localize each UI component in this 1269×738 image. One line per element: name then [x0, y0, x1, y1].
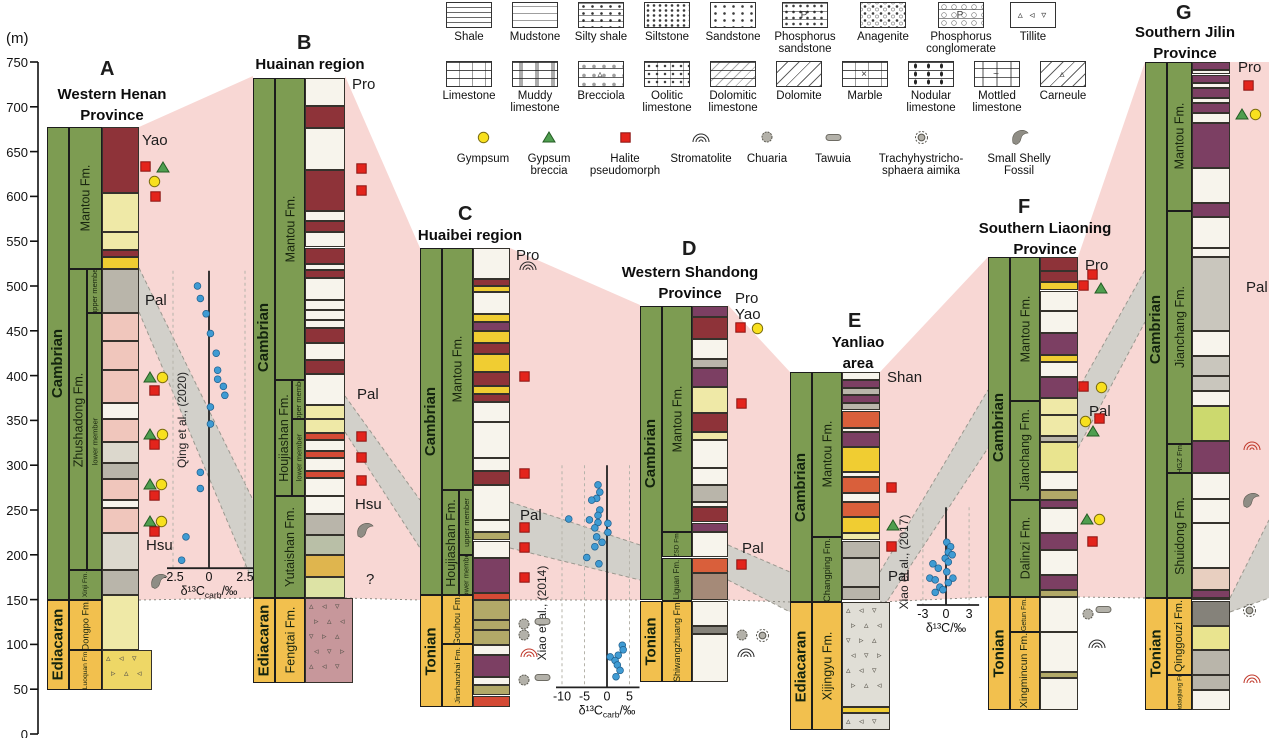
lith-segment: [692, 440, 728, 468]
rotated-label: Mantou Fm.: [1173, 103, 1187, 170]
era-ediacaran: Ediacaran: [47, 600, 69, 691]
rotated-label: Shiwangzhuang Fm.: [672, 601, 682, 683]
column-letter-C: C: [458, 203, 472, 226]
symbol-gyp-icon: [1095, 381, 1108, 394]
lith-segment: [305, 211, 345, 221]
lith-segment: [473, 292, 510, 314]
era-cambrian: Cambrian: [1145, 62, 1167, 598]
lith-segment: [692, 601, 728, 626]
lith-segment: [842, 447, 880, 472]
legend-swatch-dolomite: [776, 61, 822, 87]
column-letter-A: A: [100, 58, 114, 81]
lith-segment: [305, 170, 345, 210]
symbol-halite-icon: [356, 431, 367, 442]
lith-segment: [842, 395, 880, 403]
formation-houjiashan-fm-: Houjiashan Fm.: [275, 380, 292, 496]
tillite-clast-icon: ▿: [846, 636, 851, 645]
formation-xingmincun-fm-: Xingmincun Fm.: [1010, 632, 1040, 710]
lith-segment: [1192, 499, 1230, 523]
lith-segment: [1192, 473, 1230, 499]
symbol-halite-icon: [886, 482, 897, 493]
lith-segment: [692, 523, 728, 533]
tillite-clast-icon: ◃: [119, 654, 124, 663]
legend-label: Silty shale: [569, 31, 633, 43]
tillite-clast-icon: ▿: [132, 654, 137, 663]
column-title-E: Yanliaoarea: [832, 332, 885, 374]
lith-segment: [692, 306, 728, 318]
symbol-halite-icon: [886, 541, 897, 552]
symbol-halite-icon: [356, 185, 367, 196]
rotated-label: Xingmincun Fm.: [1020, 633, 1031, 708]
lith-segment: [305, 270, 345, 278]
tillite-clast-icon: ▹: [340, 647, 345, 656]
rotated-label: Cambrian: [793, 453, 810, 522]
lith-segment: [305, 248, 345, 264]
lith-segment: [692, 634, 728, 682]
lith-segment: [1192, 568, 1230, 590]
symbol-gtri-icon: [886, 519, 900, 531]
gyp-icon: [451, 124, 515, 150]
tillite-clast-icon: ▵: [872, 636, 877, 645]
lith-segment: [473, 354, 510, 372]
era-tonian: Tonian: [988, 597, 1010, 710]
tillite-clast-icon: ▵: [309, 662, 314, 671]
lith-segment: [692, 339, 728, 359]
zone-label-yao: Yao: [142, 132, 168, 149]
column-title-A: Western HenanProvince: [58, 84, 167, 126]
era-ediacaran: Ediacaran: [253, 598, 275, 683]
legend-label: Dolomite: [767, 90, 831, 102]
rotated-label: HGZ Fm.: [1175, 444, 1184, 474]
tillite-clast-icon: ▵: [106, 654, 111, 663]
legend-label: Tillite: [1001, 31, 1065, 43]
lith-segment: [1040, 415, 1078, 436]
marble-glyph-icon: ×: [843, 62, 887, 86]
symbol-halite-icon: [1243, 80, 1254, 91]
legend-label: Tawuia: [801, 153, 865, 165]
symbol-halite-icon: [519, 371, 530, 382]
symbol-halite-icon: [1087, 536, 1098, 547]
lith-segment: [1040, 500, 1078, 508]
legend-item: PPhosphorus sandstone: [766, 2, 844, 55]
lith-segment: [473, 394, 510, 402]
column-title-G: Southern JilinProvince: [1135, 22, 1235, 64]
rotated-label: Getun Fm.: [1022, 598, 1029, 631]
legend-item: Halite pseudomorph: [582, 124, 668, 177]
symbol-chuaria-icon: [517, 673, 531, 687]
lith-segment: [102, 257, 139, 269]
symbol-strom-icon: [1087, 638, 1107, 649]
lith-segment: ▵◃▿▹▵◃▿▹▵◃▿▹▵◃▿▹▵◃: [842, 602, 890, 707]
lith-segment: [1192, 356, 1230, 376]
halite-icon: [583, 124, 667, 150]
lith-segment: [1192, 675, 1230, 690]
zone-label-pal: Pal: [1246, 279, 1268, 296]
lith-segment: [102, 232, 139, 250]
tillite-clast-icon: ◃: [314, 647, 319, 656]
symbol-halite-icon: [356, 452, 367, 463]
lith-segment: [102, 463, 139, 478]
lith-segment: [1040, 355, 1078, 362]
zone-label-pro: Pro: [352, 76, 375, 93]
legend-item: Shale: [436, 2, 502, 43]
legend-item: Muddy limestone: [502, 61, 568, 114]
lith-segment: [305, 514, 345, 536]
lith-segment: [1040, 533, 1078, 550]
gtri-icon: [517, 124, 581, 150]
mottled-limestone-glyph-icon: ~: [975, 62, 1019, 86]
phosphorus-conglomerate-glyph-icon: P: [939, 3, 983, 27]
lith-segment: [473, 677, 510, 685]
legend-swatch-tillite: ▵ ◃ ▿: [1010, 2, 1056, 28]
lith-segment: [102, 127, 139, 192]
symbol-halite-icon: [736, 559, 747, 570]
lith-segment: [842, 403, 880, 410]
legend-item: Oolitic limestone: [634, 61, 700, 114]
carneule-glyph-icon: ▵: [1041, 62, 1085, 86]
lith-segment: [1040, 632, 1078, 672]
lith-segment: [692, 387, 728, 413]
tillite-clast-icon: ▹: [877, 651, 882, 660]
era-tonian: Tonian: [1145, 598, 1167, 710]
tillite-clast-icon: ▹: [859, 636, 864, 645]
legend-label: Stromatolite: [669, 153, 733, 165]
lith-segment: [102, 500, 139, 508]
rotated-label: Tonian: [991, 629, 1008, 677]
lith-segment: [842, 388, 880, 395]
rotated-label: Cambrian: [50, 329, 67, 398]
member-lower-member: lower member: [87, 313, 102, 570]
axis-tick-label: 100: [0, 637, 28, 652]
legend-swatch-anagenite: [860, 2, 906, 28]
lith-segment: [473, 696, 510, 708]
zone-label-hsu: Hsu: [355, 496, 382, 513]
tillite-clast-icon: ▿: [872, 717, 877, 726]
lith-segment: [1192, 168, 1230, 203]
lith-segment: [692, 532, 728, 557]
legend-swatch-brecciola: ▵: [578, 61, 624, 87]
legend-label: Oolitic limestone: [635, 90, 699, 114]
column-letter-D: D: [682, 238, 696, 261]
tillite-clast-icon: ▿: [309, 632, 314, 641]
lith-segment: [1192, 523, 1230, 568]
symbol-halite-icon: [140, 161, 151, 172]
tillite-clast-icon: ◃: [137, 669, 142, 678]
lith-segment: [842, 558, 880, 588]
lith-segment: [473, 458, 510, 471]
legend-item: Chuaria: [734, 124, 800, 165]
lith-segment: [305, 405, 345, 418]
formation-mantou-fm-: Mantou Fm.: [1167, 62, 1192, 211]
formation-mantou-fm-: Mantou Fm.: [812, 372, 842, 537]
legend-label: Limestone: [437, 90, 501, 102]
lith-segment: [305, 471, 345, 478]
lith-segment: ▵◃▿▹▵◃▿▹▵◃▿▹▵◃▿: [305, 598, 353, 683]
symbol-gtri-icon: [1235, 108, 1249, 120]
rotated-label: Luoquan Fm.: [82, 650, 89, 689]
rotated-label: lower member: [294, 433, 303, 481]
lith-segment: [1192, 391, 1230, 406]
lith-segment: [305, 300, 345, 310]
lith-segment: [305, 419, 345, 433]
legend-label: Mudstone: [503, 31, 567, 43]
rotated-label: upper member: [90, 269, 99, 313]
formation-shiwangzhuang-fm-: Shiwangzhuang Fm.: [662, 601, 692, 683]
formation-badaojiang-fm-: Badaojiang Fm.: [1167, 675, 1192, 710]
rotated-label: Jianchang Fm.: [1173, 286, 1187, 368]
era-cambrian: Cambrian: [988, 257, 1010, 597]
lith-segment: [102, 442, 139, 464]
lith-segment: [305, 496, 345, 514]
axis-tick-label: 550: [0, 234, 28, 249]
symbol-halite-icon: [149, 490, 160, 501]
lith-segment: [102, 533, 139, 570]
axis-tick-label: 650: [0, 145, 28, 160]
lith-segment: [305, 328, 345, 343]
era-cambrian: Cambrian: [47, 127, 69, 599]
legend-item: Gympsum: [450, 124, 516, 165]
lith-segment: [1040, 490, 1078, 500]
column-letter-B: B: [297, 32, 311, 55]
lith-segment: [1040, 442, 1078, 473]
zone-label-pal: Pal: [357, 386, 379, 403]
formation-mantou-fm-: Mantou Fm.: [662, 306, 692, 533]
tillite-clast-icon: ◃: [322, 662, 327, 671]
lith-segment: [305, 433, 345, 440]
symbol-tawuia-icon: [534, 673, 551, 682]
symbol-stromred-icon: [519, 647, 539, 658]
rotated-label: Zhushadong Fm.: [71, 372, 85, 467]
tillite-glyph-icon: ▵ ◃ ▿: [1011, 3, 1055, 27]
tillite-clast-icon: ▹: [851, 681, 856, 690]
lith-segment: [1040, 291, 1078, 312]
column-letter-E: E: [848, 310, 861, 333]
symbol-tawuia-icon: [534, 617, 551, 626]
tillite-clast-icon: ◃: [340, 617, 345, 626]
lith-segment: [102, 269, 139, 313]
column-title-B: Huainan region: [255, 54, 364, 75]
lith-segment: [473, 331, 510, 344]
legend-swatch-phosphorus-sandstone: P: [782, 2, 828, 28]
rotated-label: Mantou Fm.: [1018, 296, 1032, 363]
lith-segment: [842, 411, 880, 428]
legend-swatch-oolitic-limestone: [644, 61, 690, 87]
symbol-halite-icon: [519, 468, 530, 479]
legend-item: ~Mottled limestone: [964, 61, 1030, 114]
member-upper-member: upper member: [87, 269, 102, 313]
lith-segment: [842, 587, 880, 600]
lith-segment: [102, 419, 139, 442]
tillite-clast-icon: ◃: [877, 681, 882, 690]
lith-segment: [102, 370, 139, 403]
formation-gouhou-fm-: Gouhou Fm.: [442, 595, 473, 644]
rotated-label: lower member: [90, 418, 99, 466]
tillite-clast-icon: ▵: [864, 681, 869, 690]
lith-segment: [692, 413, 728, 432]
lith-segment: [1040, 550, 1078, 575]
brecciola-glyph-icon: ▵: [579, 62, 623, 86]
symbol-halite-icon: [1087, 269, 1098, 280]
zone-label-shan: Shan: [887, 369, 922, 386]
legend-label: Trachyhystricho-sphaera aimika: [867, 153, 975, 177]
rotated-label: Ediacaran: [50, 609, 67, 681]
lith-segment: [1192, 626, 1230, 650]
axis-tick-label: 350: [0, 413, 28, 428]
lith-segment: [1192, 257, 1230, 331]
lith-segment: [1040, 575, 1078, 589]
axis-tick-label: 250: [0, 503, 28, 518]
lith-segment: [305, 577, 345, 598]
rotated-label: Cambrian: [991, 393, 1008, 462]
formation-dalinzi-fm-: Dalinzi Fm.: [1010, 500, 1040, 597]
legend-swatch-limestone: [446, 61, 492, 87]
rotated-label: Jinshanzhai Fm.: [453, 647, 462, 704]
tawuia-icon: [801, 124, 865, 150]
lith-segment: [692, 573, 728, 601]
lith-segment: [102, 479, 139, 501]
legend-item: Trachyhystricho-sphaera aimika: [866, 124, 976, 177]
lith-segment: [1192, 441, 1230, 473]
lith-segment: [305, 232, 345, 247]
legend-label: Anagenite: [845, 31, 921, 43]
member-lower-member: lower member: [459, 555, 473, 595]
legend-swatch-nodular-limestone: [908, 61, 954, 87]
axis-tick-label: 500: [0, 279, 28, 294]
legend-row-2: LimestoneMuddy limestone▵BrecciolaOoliti…: [436, 61, 1096, 114]
lith-segment: [692, 468, 728, 485]
era-tonian: Tonian: [640, 601, 662, 683]
tillite-clast-icon: ▹: [851, 621, 856, 630]
legend-label: Carneule: [1031, 90, 1095, 102]
lith-segment: [305, 478, 345, 496]
symbol-chuaria-icon: [735, 628, 749, 642]
legend: ShaleMudstoneSilty shaleSiltstoneSandsto…: [436, 2, 1096, 177]
legend-label: Sandstone: [701, 31, 765, 43]
symbol-halite-icon: [1078, 381, 1089, 392]
lith-segment: [473, 372, 510, 386]
axis-tick-label: 700: [0, 100, 28, 115]
lith-segment: [473, 541, 510, 558]
symbol-halite-icon: [149, 439, 160, 450]
formation-changping-fm-: Changping Fm.: [812, 537, 842, 602]
legend-item: Limestone: [436, 61, 502, 102]
lith-segment: [305, 278, 345, 300]
tillite-clast-icon: ▹: [322, 632, 327, 641]
rotated-label: Mantou Fm.: [670, 386, 684, 453]
lith-segment: [1192, 406, 1230, 441]
symbol-halite-icon: [519, 572, 530, 583]
symbol-shelly-icon: [355, 522, 374, 539]
column-letter-F: F: [1018, 196, 1030, 219]
era-ediacaran: Ediacaran: [790, 602, 812, 730]
lith-segment: [1192, 650, 1230, 675]
lith-segment: [305, 320, 345, 328]
formation-zsd-fm-: ZSD Fm.: [662, 532, 692, 557]
symbol-gyp-icon: [156, 371, 169, 384]
legend-swatch-shale: [446, 2, 492, 28]
formation-hgz-fm-: HGZ Fm.: [1167, 444, 1192, 474]
lith-segment: [692, 558, 728, 573]
lith-segment: [1192, 217, 1230, 248]
symbol-halite-icon: [736, 398, 747, 409]
legend-item: Nodular limestone: [898, 61, 964, 114]
symbol-halite-icon: [519, 542, 530, 553]
lith-segment: [692, 485, 728, 502]
lith-segment: [1040, 508, 1078, 533]
lith-segment: [1040, 597, 1078, 632]
zone-label-pal: Pal: [888, 568, 910, 585]
symbol-halite-icon: [149, 385, 160, 396]
rotated-label: Changping Fm.: [822, 538, 832, 602]
tillite-clast-icon: ◃: [877, 621, 882, 630]
zone-label-pro: Pro: [735, 290, 758, 307]
legend-item: Silty shale: [568, 2, 634, 43]
chuaria-icon: [735, 124, 799, 150]
formation-qinggouzi-fm-: Qinggouzi Fm.: [1167, 598, 1192, 675]
zone-label-yao: Yao: [735, 306, 761, 323]
lith-segment: [102, 250, 139, 257]
legend-item: ×Marble: [832, 61, 898, 102]
tillite-clast-icon: ▵: [335, 632, 340, 641]
legend-label: Brecciola: [569, 90, 633, 102]
lith-segment: [305, 310, 345, 320]
lith-segment: [473, 322, 510, 331]
lith-segment: [1040, 377, 1078, 398]
lith-segment: [102, 193, 139, 232]
lith-segment: [692, 626, 728, 634]
formation-xijingyu-fm-: Xijingyu Fm.: [812, 602, 842, 730]
lith-segment: [305, 458, 345, 471]
symbol-halite-icon: [356, 475, 367, 486]
legend-item: PPhosphorus conglomerate: [922, 2, 1000, 55]
legend-swatch-mudstone: [512, 2, 558, 28]
axis-tick-label: 750: [0, 55, 28, 70]
tillite-clast-icon: ▿: [327, 647, 332, 656]
rotated-label: Mantou Fm.: [79, 165, 93, 232]
axis-tick-label: 300: [0, 458, 28, 473]
lith-segment: [842, 493, 880, 502]
rotated-label: Dongpo Fm.: [81, 600, 91, 650]
legend-label: Halite pseudomorph: [583, 153, 667, 177]
lith-segment: [305, 106, 345, 128]
tillite-clast-icon: ▿: [872, 666, 877, 675]
rotated-label: Ediacaran: [793, 630, 810, 702]
rotated-label: Fengtai Fm.: [283, 607, 297, 674]
legend-item: ▵Carneule: [1030, 61, 1096, 102]
rotated-label: Gouhou Fm.: [453, 595, 463, 644]
lith-segment: [1192, 62, 1230, 70]
lith-segment: [1192, 376, 1230, 391]
lith-segment: [473, 600, 510, 621]
legend-row-3: GympsumGypsum brecciaHalite pseudomorphS…: [450, 124, 1096, 177]
rotated-label: ZSD Fm.: [674, 532, 681, 557]
legend-item: Gypsum breccia: [516, 124, 582, 177]
lith-segment: [473, 685, 510, 696]
rotated-label: Tonian: [423, 627, 440, 675]
symbol-gyp-icon: [751, 322, 764, 335]
lith-segment: [305, 78, 345, 106]
symbol-shelly-icon: [149, 573, 168, 590]
symbol-stromred-icon: [1242, 673, 1262, 684]
legend-item: Stromatolite: [668, 124, 734, 165]
legend-item: Dolomite: [766, 61, 832, 102]
lith-segment: [473, 279, 510, 286]
lith-segment: [842, 432, 880, 447]
lith-segment: [1192, 248, 1230, 258]
legend-label: Siltstone: [635, 31, 699, 43]
lith-segment: [473, 620, 510, 630]
legend-label: Gympsum: [451, 153, 515, 165]
